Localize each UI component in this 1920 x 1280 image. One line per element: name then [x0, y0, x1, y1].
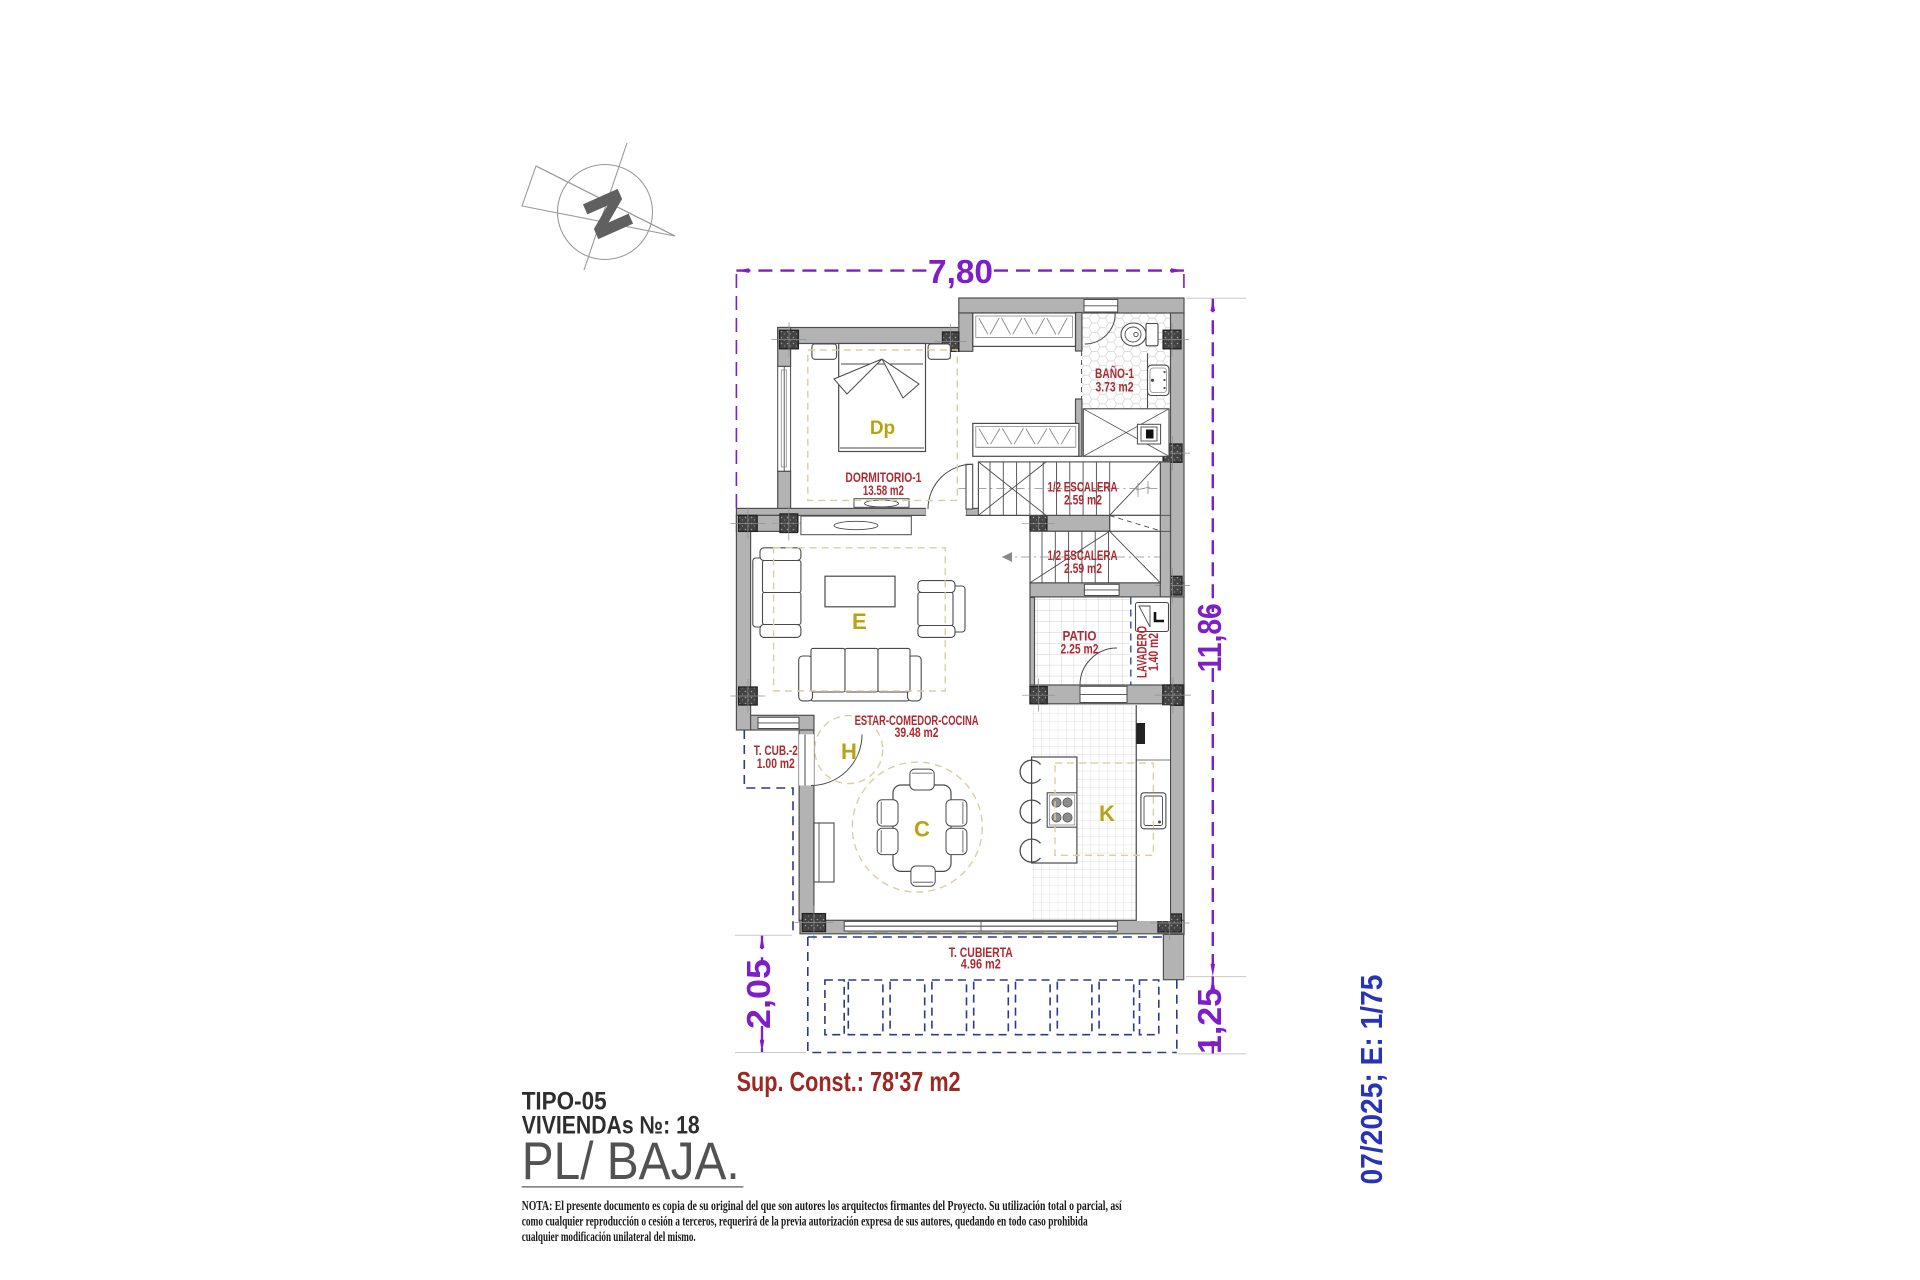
svg-text:4.96 m2: 4.96 m2 [961, 956, 1001, 972]
svg-text:1,25: 1,25 [1191, 988, 1228, 1054]
svg-text:como cualquier reproducción o: como cualquier reproducción o cesión a t… [522, 1214, 1088, 1229]
svg-text:2,05: 2,05 [740, 959, 777, 1029]
svg-text:PL/ BAJA.: PL/ BAJA. [522, 1132, 740, 1191]
svg-text:C: C [914, 817, 930, 842]
svg-text:K: K [1099, 801, 1115, 826]
svg-text:2.59 m2: 2.59 m2 [1064, 560, 1102, 576]
svg-text:cualquier modificación unilate: cualquier modificación unilateral del mi… [522, 1229, 696, 1244]
svg-text:07/2025; E: 1/75: 07/2025; E: 1/75 [1354, 975, 1389, 1185]
svg-text:3.73 m2: 3.73 m2 [1096, 379, 1134, 395]
svg-text:E: E [852, 609, 867, 634]
svg-text:7,80: 7,80 [928, 253, 993, 290]
svg-text:H: H [841, 739, 857, 764]
svg-text:2.59 m2: 2.59 m2 [1064, 492, 1102, 508]
svg-text:1.40 m2: 1.40 m2 [1145, 633, 1161, 671]
svg-text:39.48 m2: 39.48 m2 [895, 724, 939, 740]
svg-text:11,86: 11,86 [1191, 603, 1228, 672]
svg-text:Dp: Dp [870, 418, 895, 439]
svg-text:NOTA: El presente documento es: NOTA: El presente documento es copia de … [522, 1198, 1122, 1213]
svg-text:Sup. Const.: 78'37 m2: Sup. Const.: 78'37 m2 [737, 1066, 961, 1097]
svg-text:1.00 m2: 1.00 m2 [757, 755, 795, 771]
svg-text:13.58 m2: 13.58 m2 [863, 482, 904, 498]
svg-text:2.25 m2: 2.25 m2 [1061, 641, 1099, 657]
